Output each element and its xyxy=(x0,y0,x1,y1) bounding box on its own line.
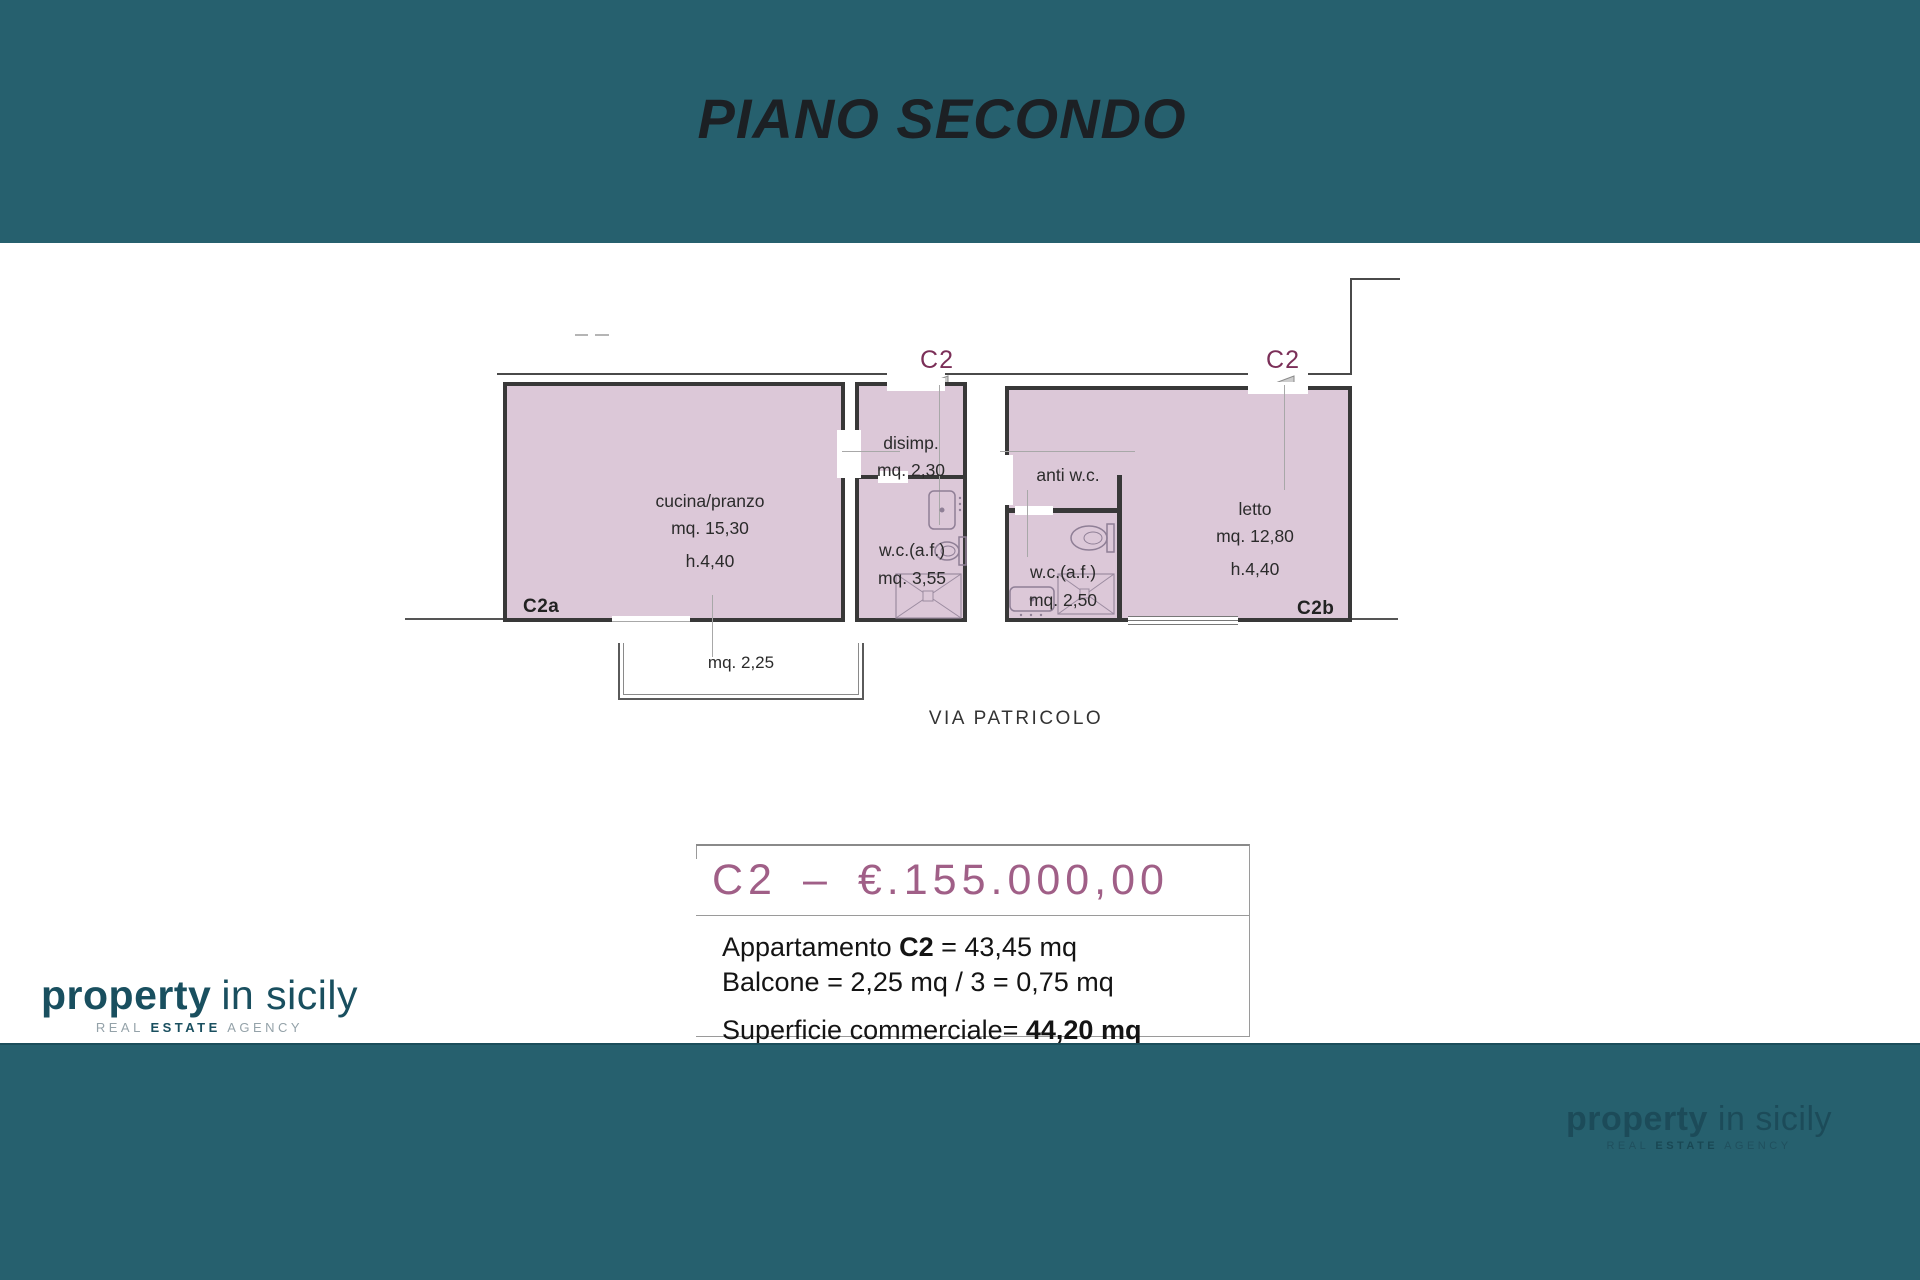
sink-icon xyxy=(928,490,964,530)
tagline-bold: ESTATE xyxy=(1655,1140,1718,1152)
wordmark-light: in sicily xyxy=(221,972,358,1018)
wordmark-bold: property xyxy=(1566,1100,1708,1138)
room-height: h.4,40 xyxy=(1155,556,1355,583)
facade-line xyxy=(497,373,887,375)
reference-dash xyxy=(575,334,588,336)
street-label: VIA PATRICOLO xyxy=(866,708,1166,730)
balcony-door-opening xyxy=(612,616,690,624)
corner-wall-line xyxy=(1350,278,1352,375)
window-line xyxy=(1128,624,1238,625)
section-line xyxy=(1284,385,1285,490)
detail-balcony: Balcone = 2,25 mq / 3 = 0,75 mq xyxy=(722,965,1249,1000)
window-line xyxy=(1128,620,1238,621)
room-name: cucina/pranzo xyxy=(540,488,880,515)
agency-wordmark: propertyin sicily xyxy=(41,973,358,1017)
tagline-bold: ESTATE xyxy=(150,1020,220,1035)
price-box-border xyxy=(696,846,697,859)
room-area: mq. 15,30 xyxy=(540,515,880,542)
label-letto: letto mq. 12,80 h.4,40 xyxy=(1155,496,1355,583)
room-name: w.c.(a.f.) xyxy=(1003,558,1123,586)
label-antiwc: anti w.c. xyxy=(1005,462,1131,489)
flyer-page: PIANO SECONDO C2 C2 xyxy=(0,0,1920,1280)
facade-line xyxy=(945,373,1248,375)
agency-tagline: REAL ESTATE AGENCY xyxy=(96,1020,303,1035)
footer-wordmark: propertyin sicily xyxy=(1566,1100,1832,1138)
unit-label-c2a: C2a xyxy=(523,596,559,618)
window-line xyxy=(1128,616,1238,617)
floor-plan: C2 C2 xyxy=(395,270,1405,780)
section-marker-label: C2 xyxy=(1253,346,1313,375)
wordmark-light: in sicily xyxy=(1718,1100,1832,1138)
price-unit: C2 xyxy=(712,856,777,905)
room-area: mq. 2,50 xyxy=(1003,586,1123,614)
dimension-line xyxy=(1000,451,1135,452)
price-value: €.155.000,00 xyxy=(858,856,1169,905)
balcony-area-label: mq. 2,25 xyxy=(708,653,774,698)
balcony: mq. 2,25 xyxy=(618,643,864,700)
label-disimpegno: disimp. mq. 2,30 xyxy=(855,430,967,484)
wordmark-bold: property xyxy=(41,972,211,1018)
unit-label-c2b: C2b xyxy=(1297,598,1334,620)
detail-text: = 43,45 mq xyxy=(934,932,1077,962)
room-name: disimp. xyxy=(855,430,967,457)
agency-logo: propertyin sicily REAL ESTATE AGENCY xyxy=(41,973,358,1035)
entrance-opening-right xyxy=(1248,382,1308,394)
toilet-icon xyxy=(1067,522,1115,554)
price-box: C2 – €.155.000,00 Appartamento C2 = 43,4… xyxy=(696,844,1250,1037)
room-name: letto xyxy=(1155,496,1355,523)
price-details: Appartamento C2 = 43,45 mq Balcone = 2,2… xyxy=(696,916,1249,1048)
corner-wall-line xyxy=(1350,278,1400,280)
detail-text: Superficie commerciale= xyxy=(722,1015,1026,1045)
tagline-text: REAL xyxy=(1606,1140,1655,1152)
ground-line-right xyxy=(1352,618,1398,620)
room-area: mq. 12,80 xyxy=(1155,523,1355,550)
detail-text-bold: C2 xyxy=(899,932,934,962)
detail-text: Appartamento xyxy=(722,932,899,962)
footer-logo: propertyin sicily REAL ESTATE AGENCY xyxy=(1566,1100,1832,1152)
room-name: anti w.c. xyxy=(1005,462,1131,489)
dimension-line xyxy=(1027,490,1028,557)
door-opening-wc2 xyxy=(1015,506,1053,515)
balcony-threshold-line xyxy=(612,621,690,622)
detail-apartment: Appartamento C2 = 43,45 mq xyxy=(722,930,1249,965)
label-wc2: w.c.(a.f.) mq. 2,50 xyxy=(1003,558,1123,614)
price-row: C2 – €.155.000,00 xyxy=(696,846,1249,916)
label-wc1: w.c.(a.f.) mq. 3,55 xyxy=(857,536,967,592)
header-band: PIANO SECONDO xyxy=(0,0,1920,243)
reference-dash xyxy=(595,334,609,336)
tagline-text: REAL xyxy=(96,1020,151,1035)
ground-line-left xyxy=(405,618,503,620)
label-cucina: cucina/pranzo mq. 15,30 h.4,40 xyxy=(540,488,880,575)
detail-text-bold: 44,20 mq xyxy=(1026,1015,1142,1045)
page-title: PIANO SECONDO xyxy=(0,86,1902,151)
facade-line xyxy=(1308,373,1352,375)
room-height: h.4,40 xyxy=(540,548,880,575)
tagline-text: AGENCY xyxy=(221,1020,303,1035)
room-area: mq. 3,55 xyxy=(857,564,967,592)
section-marker-label: C2 xyxy=(907,346,967,375)
footer-band xyxy=(0,1043,1920,1280)
footer-tagline: REAL ESTATE AGENCY xyxy=(1606,1140,1791,1152)
room-area: mq. 2,30 xyxy=(855,457,967,484)
price-separator: – xyxy=(803,856,832,905)
room-name: w.c.(a.f.) xyxy=(857,536,967,564)
entrance-opening-left xyxy=(887,378,945,391)
tagline-text: AGENCY xyxy=(1718,1140,1791,1152)
